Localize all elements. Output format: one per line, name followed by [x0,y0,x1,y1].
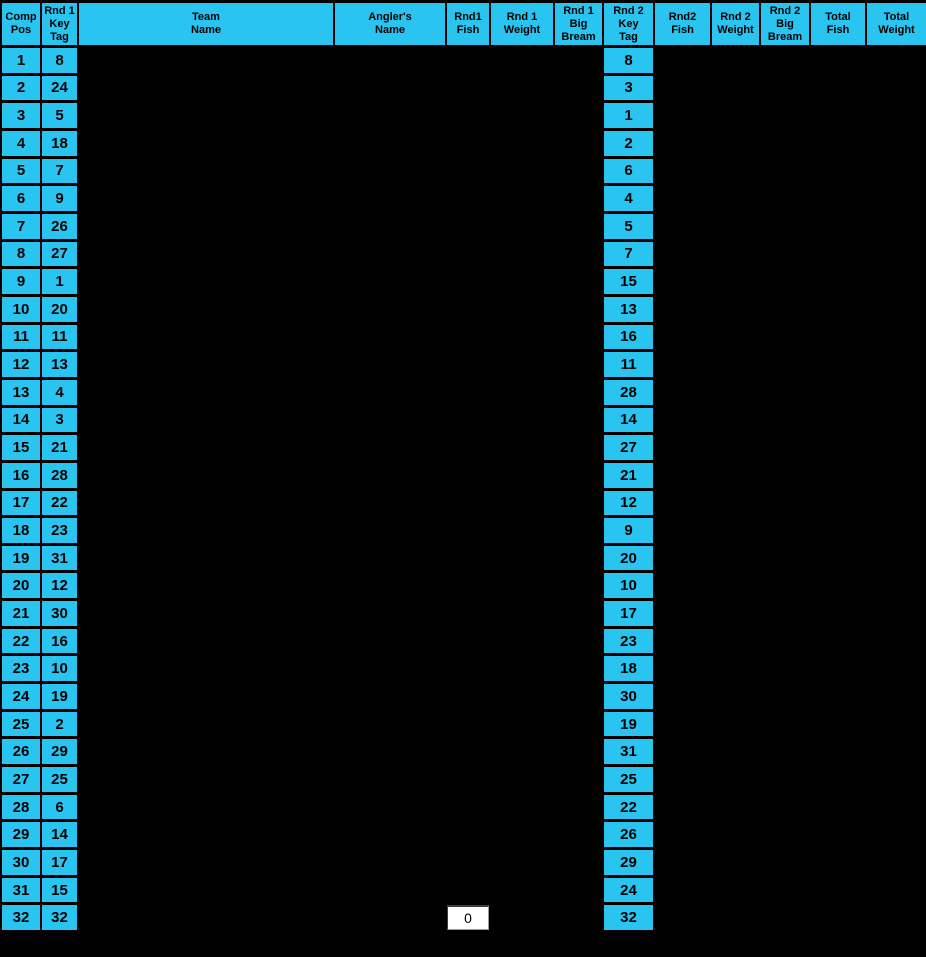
cell-rnd2-big-bream[interactable] [760,212,810,240]
cell-comp-pos[interactable]: 14 [1,406,41,434]
cell-anglers-name[interactable] [334,295,446,323]
cell-total-weight[interactable] [866,821,926,849]
cell-rnd1-fish[interactable] [446,295,490,323]
cell-comp-pos[interactable]: 1 [1,47,41,75]
cell-rnd2-big-bream[interactable] [760,47,810,75]
cell-rnd1-fish[interactable] [446,185,490,213]
cell-rnd1-weight[interactable] [490,710,554,738]
cell-rnd1-fish[interactable] [446,821,490,849]
cell-comp-pos[interactable]: 16 [1,461,41,489]
cell-comp-pos[interactable]: 25 [1,710,41,738]
cell-rnd1-fish[interactable] [446,572,490,600]
cell-rnd1-key-tag[interactable]: 1 [41,268,78,296]
cell-team-name[interactable] [78,434,334,462]
cell-rnd1-fish[interactable] [446,793,490,821]
cell-team-name[interactable] [78,323,334,351]
cell-rnd1-key-tag[interactable]: 26 [41,212,78,240]
cell-rnd2-big-bream[interactable] [760,627,810,655]
cell-comp-pos[interactable]: 8 [1,240,41,268]
cell-rnd1-key-tag[interactable]: 31 [41,544,78,572]
cell-total-weight[interactable] [866,157,926,185]
cell-rnd1-key-tag[interactable]: 22 [41,489,78,517]
cell-rnd2-fish[interactable] [654,461,711,489]
cell-total-weight[interactable] [866,268,926,296]
cell-rnd2-big-bream[interactable] [760,74,810,102]
cell-total-fish[interactable] [810,185,866,213]
cell-rnd2-fish[interactable] [654,904,711,932]
cell-total-fish[interactable] [810,295,866,323]
column-header-rnd2-big-bream[interactable]: Rnd 2 Big Bream [760,2,810,47]
cell-rnd1-big-bream[interactable] [554,517,603,545]
cell-rnd1-key-tag[interactable]: 14 [41,821,78,849]
cell-total-weight[interactable] [866,710,926,738]
cell-rnd1-key-tag[interactable]: 16 [41,627,78,655]
cell-total-fish[interactable] [810,876,866,904]
cell-anglers-name[interactable] [334,323,446,351]
column-header-rnd1-fish[interactable]: Rnd1 Fish [446,2,490,47]
cell-total-fish[interactable] [810,461,866,489]
cell-rnd2-weight[interactable] [711,406,760,434]
cell-rnd1-big-bream[interactable] [554,738,603,766]
cell-rnd1-fish[interactable] [446,240,490,268]
cell-rnd2-fish[interactable] [654,185,711,213]
cell-rnd2-fish[interactable] [654,627,711,655]
cell-rnd2-key-tag[interactable]: 14 [603,406,654,434]
cell-rnd2-key-tag[interactable]: 26 [603,821,654,849]
cell-comp-pos[interactable]: 17 [1,489,41,517]
cell-team-name[interactable] [78,544,334,572]
cell-team-name[interactable] [78,710,334,738]
cell-total-weight[interactable] [866,351,926,379]
cell-team-name[interactable] [78,489,334,517]
cell-rnd2-weight[interactable] [711,821,760,849]
cell-comp-pos[interactable]: 29 [1,821,41,849]
cell-anglers-name[interactable] [334,849,446,877]
cell-rnd1-weight[interactable] [490,766,554,794]
cell-rnd1-big-bream[interactable] [554,655,603,683]
cell-comp-pos[interactable]: 7 [1,212,41,240]
cell-rnd1-key-tag[interactable]: 28 [41,461,78,489]
cell-team-name[interactable] [78,406,334,434]
cell-rnd2-big-bream[interactable] [760,323,810,351]
cell-total-weight[interactable] [866,47,926,75]
column-header-rnd1-weight[interactable]: Rnd 1 Weight [490,2,554,47]
cell-rnd1-big-bream[interactable] [554,185,603,213]
cell-team-name[interactable] [78,185,334,213]
cell-comp-pos[interactable]: 22 [1,627,41,655]
cell-anglers-name[interactable] [334,627,446,655]
cell-rnd2-big-bream[interactable] [760,904,810,932]
cell-rnd2-key-tag[interactable]: 2 [603,129,654,157]
cell-rnd1-fish[interactable] [446,655,490,683]
cell-rnd2-fish[interactable] [654,212,711,240]
cell-rnd1-key-tag[interactable]: 23 [41,517,78,545]
cell-rnd2-key-tag[interactable]: 21 [603,461,654,489]
cell-rnd1-weight[interactable] [490,129,554,157]
cell-rnd2-big-bream[interactable] [760,766,810,794]
cell-rnd2-weight[interactable] [711,323,760,351]
cell-total-weight[interactable] [866,185,926,213]
cell-comp-pos[interactable]: 3 [1,102,41,130]
cell-rnd2-fish[interactable] [654,572,711,600]
cell-team-name[interactable] [78,793,334,821]
cell-rnd2-weight[interactable] [711,434,760,462]
cell-anglers-name[interactable] [334,683,446,711]
cell-anglers-name[interactable] [334,489,446,517]
cell-rnd2-key-tag[interactable]: 30 [603,683,654,711]
cell-anglers-name[interactable] [334,74,446,102]
cell-rnd1-weight[interactable] [490,323,554,351]
cell-rnd2-big-bream[interactable] [760,738,810,766]
cell-anglers-name[interactable] [334,544,446,572]
cell-rnd2-key-tag[interactable]: 24 [603,876,654,904]
cell-total-weight[interactable] [866,129,926,157]
cell-rnd2-fish[interactable] [654,295,711,323]
cell-rnd1-fish[interactable] [446,683,490,711]
cell-rnd1-weight[interactable] [490,627,554,655]
cell-rnd2-big-bream[interactable] [760,572,810,600]
cell-total-weight[interactable] [866,600,926,628]
cell-total-fish[interactable] [810,849,866,877]
cell-team-name[interactable] [78,157,334,185]
cell-rnd1-big-bream[interactable] [554,904,603,932]
cell-team-name[interactable] [78,876,334,904]
cell-total-fish[interactable] [810,710,866,738]
cell-rnd2-key-tag[interactable]: 16 [603,323,654,351]
cell-rnd1-big-bream[interactable] [554,876,603,904]
cell-total-weight[interactable] [866,766,926,794]
column-header-total-weight[interactable]: Total Weight [866,2,926,47]
cell-anglers-name[interactable] [334,461,446,489]
cell-rnd2-fish[interactable] [654,849,711,877]
cell-comp-pos[interactable]: 28 [1,793,41,821]
cell-rnd2-big-bream[interactable] [760,793,810,821]
cell-total-fish[interactable] [810,738,866,766]
cell-rnd2-key-tag[interactable]: 23 [603,627,654,655]
cell-team-name[interactable] [78,766,334,794]
cell-rnd1-fish[interactable] [446,406,490,434]
cell-rnd2-fish[interactable] [654,683,711,711]
cell-rnd2-big-bream[interactable] [760,489,810,517]
cell-total-weight[interactable] [866,461,926,489]
cell-rnd2-fish[interactable] [654,655,711,683]
cell-comp-pos[interactable]: 23 [1,655,41,683]
cell-rnd2-big-bream[interactable] [760,600,810,628]
cell-anglers-name[interactable] [334,738,446,766]
column-header-comp-pos[interactable]: Comp Pos [1,2,41,47]
cell-rnd1-big-bream[interactable] [554,212,603,240]
cell-total-fish[interactable] [810,47,866,75]
cell-rnd2-weight[interactable] [711,378,760,406]
cell-rnd2-fish[interactable] [654,489,711,517]
cell-rnd1-weight[interactable] [490,904,554,932]
cell-rnd2-fish[interactable] [654,378,711,406]
cell-total-fish[interactable] [810,821,866,849]
cell-rnd1-fish[interactable] [446,74,490,102]
cell-rnd2-fish[interactable] [654,74,711,102]
cell-rnd1-fish[interactable] [446,627,490,655]
cell-rnd1-big-bream[interactable] [554,821,603,849]
cell-rnd1-big-bream[interactable] [554,351,603,379]
cell-rnd1-weight[interactable] [490,793,554,821]
cell-team-name[interactable] [78,351,334,379]
cell-team-name[interactable] [78,904,334,932]
cell-rnd1-fish[interactable] [446,517,490,545]
cell-rnd1-fish[interactable] [446,323,490,351]
cell-rnd1-weight[interactable] [490,268,554,296]
cell-rnd2-key-tag[interactable]: 6 [603,157,654,185]
cell-team-name[interactable] [78,378,334,406]
cell-rnd1-key-tag[interactable]: 30 [41,600,78,628]
cell-rnd2-key-tag[interactable]: 3 [603,74,654,102]
cell-rnd1-fish[interactable] [446,434,490,462]
cell-rnd2-weight[interactable] [711,793,760,821]
cell-rnd1-big-bream[interactable] [554,157,603,185]
cell-rnd2-key-tag[interactable]: 12 [603,489,654,517]
cell-comp-pos[interactable]: 2 [1,74,41,102]
cell-rnd1-fish[interactable] [446,766,490,794]
cell-rnd2-fish[interactable] [654,323,711,351]
cell-team-name[interactable] [78,461,334,489]
cell-rnd1-weight[interactable] [490,738,554,766]
cell-rnd1-key-tag[interactable]: 5 [41,102,78,130]
cell-anglers-name[interactable] [334,47,446,75]
cell-comp-pos[interactable]: 19 [1,544,41,572]
cell-rnd2-fish[interactable] [654,738,711,766]
cell-comp-pos[interactable]: 24 [1,683,41,711]
cell-team-name[interactable] [78,821,334,849]
cell-rnd2-fish[interactable] [654,544,711,572]
cell-rnd1-weight[interactable] [490,876,554,904]
cell-rnd2-key-tag[interactable]: 15 [603,268,654,296]
cell-rnd2-key-tag[interactable]: 9 [603,517,654,545]
cell-rnd2-fish[interactable] [654,47,711,75]
cell-rnd2-big-bream[interactable] [760,240,810,268]
cell-total-fish[interactable] [810,904,866,932]
cell-rnd2-weight[interactable] [711,240,760,268]
cell-rnd1-big-bream[interactable] [554,47,603,75]
cell-total-fish[interactable] [810,240,866,268]
cell-team-name[interactable] [78,74,334,102]
cell-rnd2-weight[interactable] [711,849,760,877]
active-cell-input[interactable]: 0 [447,905,489,930]
cell-rnd2-key-tag[interactable]: 28 [603,378,654,406]
cell-total-fish[interactable] [810,544,866,572]
cell-team-name[interactable] [78,517,334,545]
cell-anglers-name[interactable] [334,766,446,794]
column-header-rnd2-fish[interactable]: Rnd2 Fish [654,2,711,47]
cell-total-weight[interactable] [866,212,926,240]
cell-anglers-name[interactable] [334,821,446,849]
cell-total-fish[interactable] [810,627,866,655]
cell-comp-pos[interactable]: 18 [1,517,41,545]
cell-total-weight[interactable] [866,517,926,545]
cell-rnd1-key-tag[interactable]: 6 [41,793,78,821]
cell-rnd2-big-bream[interactable] [760,821,810,849]
cell-rnd2-weight[interactable] [711,627,760,655]
cell-rnd1-big-bream[interactable] [554,600,603,628]
cell-rnd1-big-bream[interactable] [554,572,603,600]
cell-rnd1-big-bream[interactable] [554,461,603,489]
cell-total-weight[interactable] [866,489,926,517]
cell-total-weight[interactable] [866,323,926,351]
cell-team-name[interactable] [78,212,334,240]
cell-anglers-name[interactable] [334,157,446,185]
cell-rnd2-fish[interactable] [654,351,711,379]
cell-rnd2-weight[interactable] [711,129,760,157]
cell-total-fish[interactable] [810,489,866,517]
cell-anglers-name[interactable] [334,600,446,628]
cell-rnd1-big-bream[interactable] [554,74,603,102]
cell-anglers-name[interactable] [334,517,446,545]
cell-total-fish[interactable] [810,212,866,240]
cell-rnd1-key-tag[interactable]: 8 [41,47,78,75]
cell-rnd2-key-tag[interactable]: 11 [603,351,654,379]
cell-comp-pos[interactable]: 9 [1,268,41,296]
cell-total-fish[interactable] [810,102,866,130]
cell-total-weight[interactable] [866,849,926,877]
cell-rnd2-big-bream[interactable] [760,129,810,157]
cell-total-fish[interactable] [810,572,866,600]
cell-rnd1-key-tag[interactable]: 4 [41,378,78,406]
cell-rnd2-key-tag[interactable]: 5 [603,212,654,240]
cell-rnd2-big-bream[interactable] [760,849,810,877]
cell-rnd1-key-tag[interactable]: 29 [41,738,78,766]
cell-rnd1-key-tag[interactable]: 21 [41,434,78,462]
cell-rnd2-key-tag[interactable]: 27 [603,434,654,462]
cell-comp-pos[interactable]: 11 [1,323,41,351]
cell-rnd1-key-tag[interactable]: 2 [41,710,78,738]
cell-total-fish[interactable] [810,157,866,185]
cell-rnd2-big-bream[interactable] [760,351,810,379]
cell-total-fish[interactable] [810,268,866,296]
cell-rnd2-weight[interactable] [711,904,760,932]
cell-anglers-name[interactable] [334,185,446,213]
cell-rnd2-key-tag[interactable]: 7 [603,240,654,268]
cell-rnd1-weight[interactable] [490,683,554,711]
cell-team-name[interactable] [78,102,334,130]
cell-rnd1-fish[interactable] [446,212,490,240]
cell-rnd1-weight[interactable] [490,240,554,268]
cell-rnd2-weight[interactable] [711,683,760,711]
cell-rnd1-weight[interactable] [490,74,554,102]
cell-rnd2-key-tag[interactable]: 32 [603,904,654,932]
cell-anglers-name[interactable] [334,793,446,821]
cell-rnd1-weight[interactable] [490,461,554,489]
cell-team-name[interactable] [78,849,334,877]
cell-rnd2-big-bream[interactable] [760,102,810,130]
cell-total-fish[interactable] [810,766,866,794]
cell-rnd2-weight[interactable] [711,710,760,738]
cell-rnd1-key-tag[interactable]: 11 [41,323,78,351]
cell-rnd1-big-bream[interactable] [554,710,603,738]
cell-rnd1-fish[interactable] [446,351,490,379]
cell-rnd2-weight[interactable] [711,212,760,240]
cell-total-fish[interactable] [810,683,866,711]
cell-rnd1-big-bream[interactable] [554,406,603,434]
cell-rnd2-fish[interactable] [654,268,711,296]
cell-rnd2-weight[interactable] [711,876,760,904]
cell-rnd2-key-tag[interactable]: 1 [603,102,654,130]
cell-rnd1-key-tag[interactable]: 9 [41,185,78,213]
cell-rnd2-key-tag[interactable]: 31 [603,738,654,766]
cell-rnd2-big-bream[interactable] [760,434,810,462]
cell-rnd1-key-tag[interactable]: 27 [41,240,78,268]
cell-rnd2-big-bream[interactable] [760,517,810,545]
cell-comp-pos[interactable]: 32 [1,904,41,932]
cell-rnd2-weight[interactable] [711,572,760,600]
cell-comp-pos[interactable]: 5 [1,157,41,185]
cell-rnd1-key-tag[interactable]: 32 [41,904,78,932]
cell-rnd1-fish[interactable] [446,849,490,877]
cell-rnd1-key-tag[interactable]: 12 [41,572,78,600]
cell-rnd1-fish[interactable] [446,102,490,130]
cell-anglers-name[interactable] [334,212,446,240]
cell-anglers-name[interactable] [334,710,446,738]
cell-rnd1-key-tag[interactable]: 20 [41,295,78,323]
cell-rnd1-weight[interactable] [490,655,554,683]
column-header-team-name[interactable]: Team Name [78,2,334,47]
cell-rnd1-fish[interactable] [446,544,490,572]
cell-rnd2-weight[interactable] [711,157,760,185]
cell-total-weight[interactable] [866,102,926,130]
cell-rnd1-weight[interactable] [490,406,554,434]
cell-rnd1-weight[interactable] [490,572,554,600]
cell-rnd2-weight[interactable] [711,461,760,489]
cell-comp-pos[interactable]: 6 [1,185,41,213]
cell-total-fish[interactable] [810,129,866,157]
cell-anglers-name[interactable] [334,268,446,296]
cell-rnd1-big-bream[interactable] [554,849,603,877]
cell-rnd1-big-bream[interactable] [554,489,603,517]
cell-rnd1-key-tag[interactable]: 17 [41,849,78,877]
cell-rnd1-big-bream[interactable] [554,434,603,462]
cell-rnd1-weight[interactable] [490,351,554,379]
cell-rnd2-weight[interactable] [711,351,760,379]
cell-rnd2-fish[interactable] [654,793,711,821]
cell-rnd2-fish[interactable] [654,710,711,738]
cell-rnd1-fish[interactable] [446,876,490,904]
cell-rnd2-key-tag[interactable]: 20 [603,544,654,572]
cell-rnd1-weight[interactable] [490,102,554,130]
cell-rnd2-weight[interactable] [711,47,760,75]
cell-rnd1-key-tag[interactable]: 3 [41,406,78,434]
cell-rnd2-weight[interactable] [711,295,760,323]
cell-team-name[interactable] [78,240,334,268]
cell-rnd2-key-tag[interactable]: 19 [603,710,654,738]
cell-comp-pos[interactable]: 4 [1,129,41,157]
cell-rnd2-key-tag[interactable]: 25 [603,766,654,794]
cell-rnd1-key-tag[interactable]: 25 [41,766,78,794]
cell-rnd1-big-bream[interactable] [554,378,603,406]
cell-total-weight[interactable] [866,378,926,406]
cell-rnd1-big-bream[interactable] [554,268,603,296]
cell-rnd2-big-bream[interactable] [760,185,810,213]
cell-total-weight[interactable] [866,627,926,655]
cell-total-weight[interactable] [866,738,926,766]
cell-rnd2-weight[interactable] [711,655,760,683]
cell-rnd1-fish[interactable] [446,47,490,75]
cell-rnd2-weight[interactable] [711,517,760,545]
cell-rnd1-big-bream[interactable] [554,683,603,711]
cell-rnd2-fish[interactable] [654,102,711,130]
cell-rnd1-big-bream[interactable] [554,323,603,351]
cell-total-weight[interactable] [866,904,926,932]
cell-rnd2-weight[interactable] [711,102,760,130]
cell-rnd2-big-bream[interactable] [760,544,810,572]
cell-team-name[interactable] [78,129,334,157]
cell-rnd1-fish[interactable] [446,738,490,766]
